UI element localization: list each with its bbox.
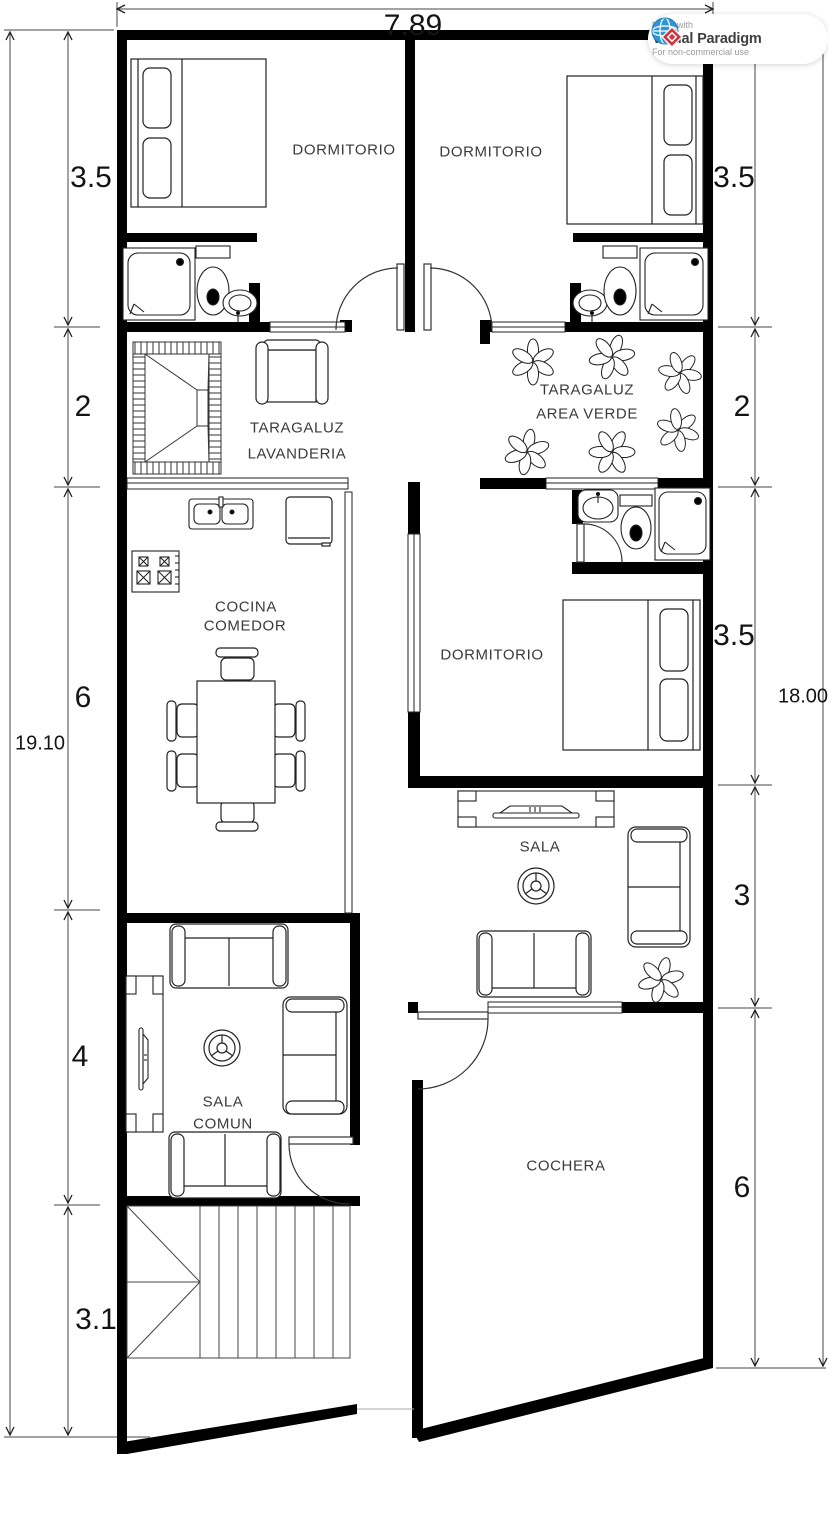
flower-icon	[501, 425, 554, 478]
visual-paradigm-logo-icon	[648, 14, 688, 54]
room-label-green-area-line2: AREA VERDE	[536, 406, 638, 423]
room-label-bedroom-top-left: DORMITORIO	[292, 142, 395, 159]
floor-plan-drawing	[0, 0, 828, 1520]
sofa-icon-comun-bottom	[169, 1132, 281, 1198]
window-icon	[488, 1002, 622, 1013]
room-label-common-room-line2: COMUN	[193, 1116, 253, 1133]
bed-icon-top-right	[567, 76, 703, 224]
window-icon	[408, 534, 420, 712]
room-label-laundry-line2: LAVANDERIA	[248, 446, 347, 463]
sink-icon	[578, 490, 618, 522]
flower-icon	[583, 328, 641, 387]
dim-right-3: 3.5	[713, 619, 755, 653]
round-table-icon	[204, 1030, 240, 1066]
dim-left-1: 3.5	[70, 161, 112, 195]
dim-left-3: 6	[75, 681, 92, 715]
shower-icon	[640, 248, 708, 320]
toilet-icon	[620, 495, 652, 549]
dim-right-total: 18.00	[778, 686, 828, 709]
dim-right-5: 6	[734, 1171, 751, 1205]
chair-icon	[273, 701, 305, 741]
sofa-icon-comun-right	[283, 997, 347, 1114]
dim-top-width: 7.89	[384, 9, 442, 43]
dim-right-2: 2	[734, 390, 751, 424]
chair-icon	[216, 648, 258, 680]
fridge-icon	[286, 497, 332, 546]
dim-left-4: 4	[72, 1040, 89, 1074]
door-arc-common-room	[289, 1137, 353, 1204]
room-label-living-room: SALA	[520, 839, 561, 856]
room-label-garage: COCHERA	[526, 1158, 605, 1175]
visual-paradigm-badge[interactable]: Made with Visual Paradigm For non-commer…	[648, 14, 828, 64]
dim-left-total: 19.10	[15, 733, 65, 756]
sofa-icon-sala-right	[628, 827, 690, 947]
bathroom-top-left	[123, 246, 257, 322]
room-label-bedroom-middle: DORMITORIO	[440, 647, 543, 664]
kitchen-sink-icon	[189, 497, 253, 529]
plant-icon	[633, 952, 689, 1008]
dim-right-1: 3.5	[713, 161, 755, 195]
kitchen-half-wall	[345, 492, 352, 913]
toilet-icon	[603, 246, 637, 315]
chair-icon	[273, 751, 305, 791]
stairs-icon	[127, 1206, 350, 1358]
flower-icon	[650, 343, 710, 403]
room-label-common-room-line1: SALA	[203, 1094, 244, 1111]
shower-icon	[655, 488, 710, 560]
bed-icon-top-left	[131, 59, 266, 207]
door-arc-garage	[418, 1012, 488, 1089]
floor-plan-page: DORMITORIO DORMITORIO TARAGALUZ LAVANDER…	[0, 0, 828, 1520]
sofa-icon-comun-top	[170, 924, 288, 988]
window-icon	[270, 322, 345, 332]
window-icon	[546, 478, 658, 489]
tv-console-icon-vertical	[126, 976, 163, 1132]
window-icon	[492, 322, 565, 332]
chair-icon	[216, 801, 258, 831]
chair-icon	[167, 751, 199, 791]
flower-icon	[510, 339, 555, 385]
chair-icon	[167, 701, 199, 741]
window-icon	[127, 478, 348, 489]
flower-icon	[648, 400, 708, 460]
laundry-sink-icon	[133, 342, 221, 474]
dim-left-2: 2	[75, 390, 92, 424]
round-table-icon	[518, 868, 554, 904]
bathroom-top-right	[573, 246, 708, 322]
sofa-icon-sala-bottom	[477, 931, 591, 997]
stove-icon	[132, 551, 179, 592]
flower-icon	[581, 421, 643, 483]
armchair-icon	[256, 340, 328, 404]
dim-right-4: 3	[734, 879, 751, 913]
dining-table-icon	[167, 648, 305, 831]
room-label-kitchen-line1: COCINA	[215, 599, 277, 616]
dim-left-5: 3.1	[75, 1303, 117, 1337]
room-label-kitchen-line2: COMEDOR	[204, 618, 287, 635]
room-label-laundry-line1: TARAGALUZ	[250, 420, 344, 437]
room-label-bedroom-top-right: DORMITORIO	[439, 144, 542, 161]
room-label-green-area-line1: TARAGALUZ	[540, 382, 634, 399]
door-arc-bathroom-middle	[577, 524, 622, 562]
bathroom-middle	[578, 488, 710, 560]
tv-console-icon	[458, 791, 614, 827]
shower-icon	[123, 248, 195, 320]
bed-icon-middle	[563, 600, 700, 750]
